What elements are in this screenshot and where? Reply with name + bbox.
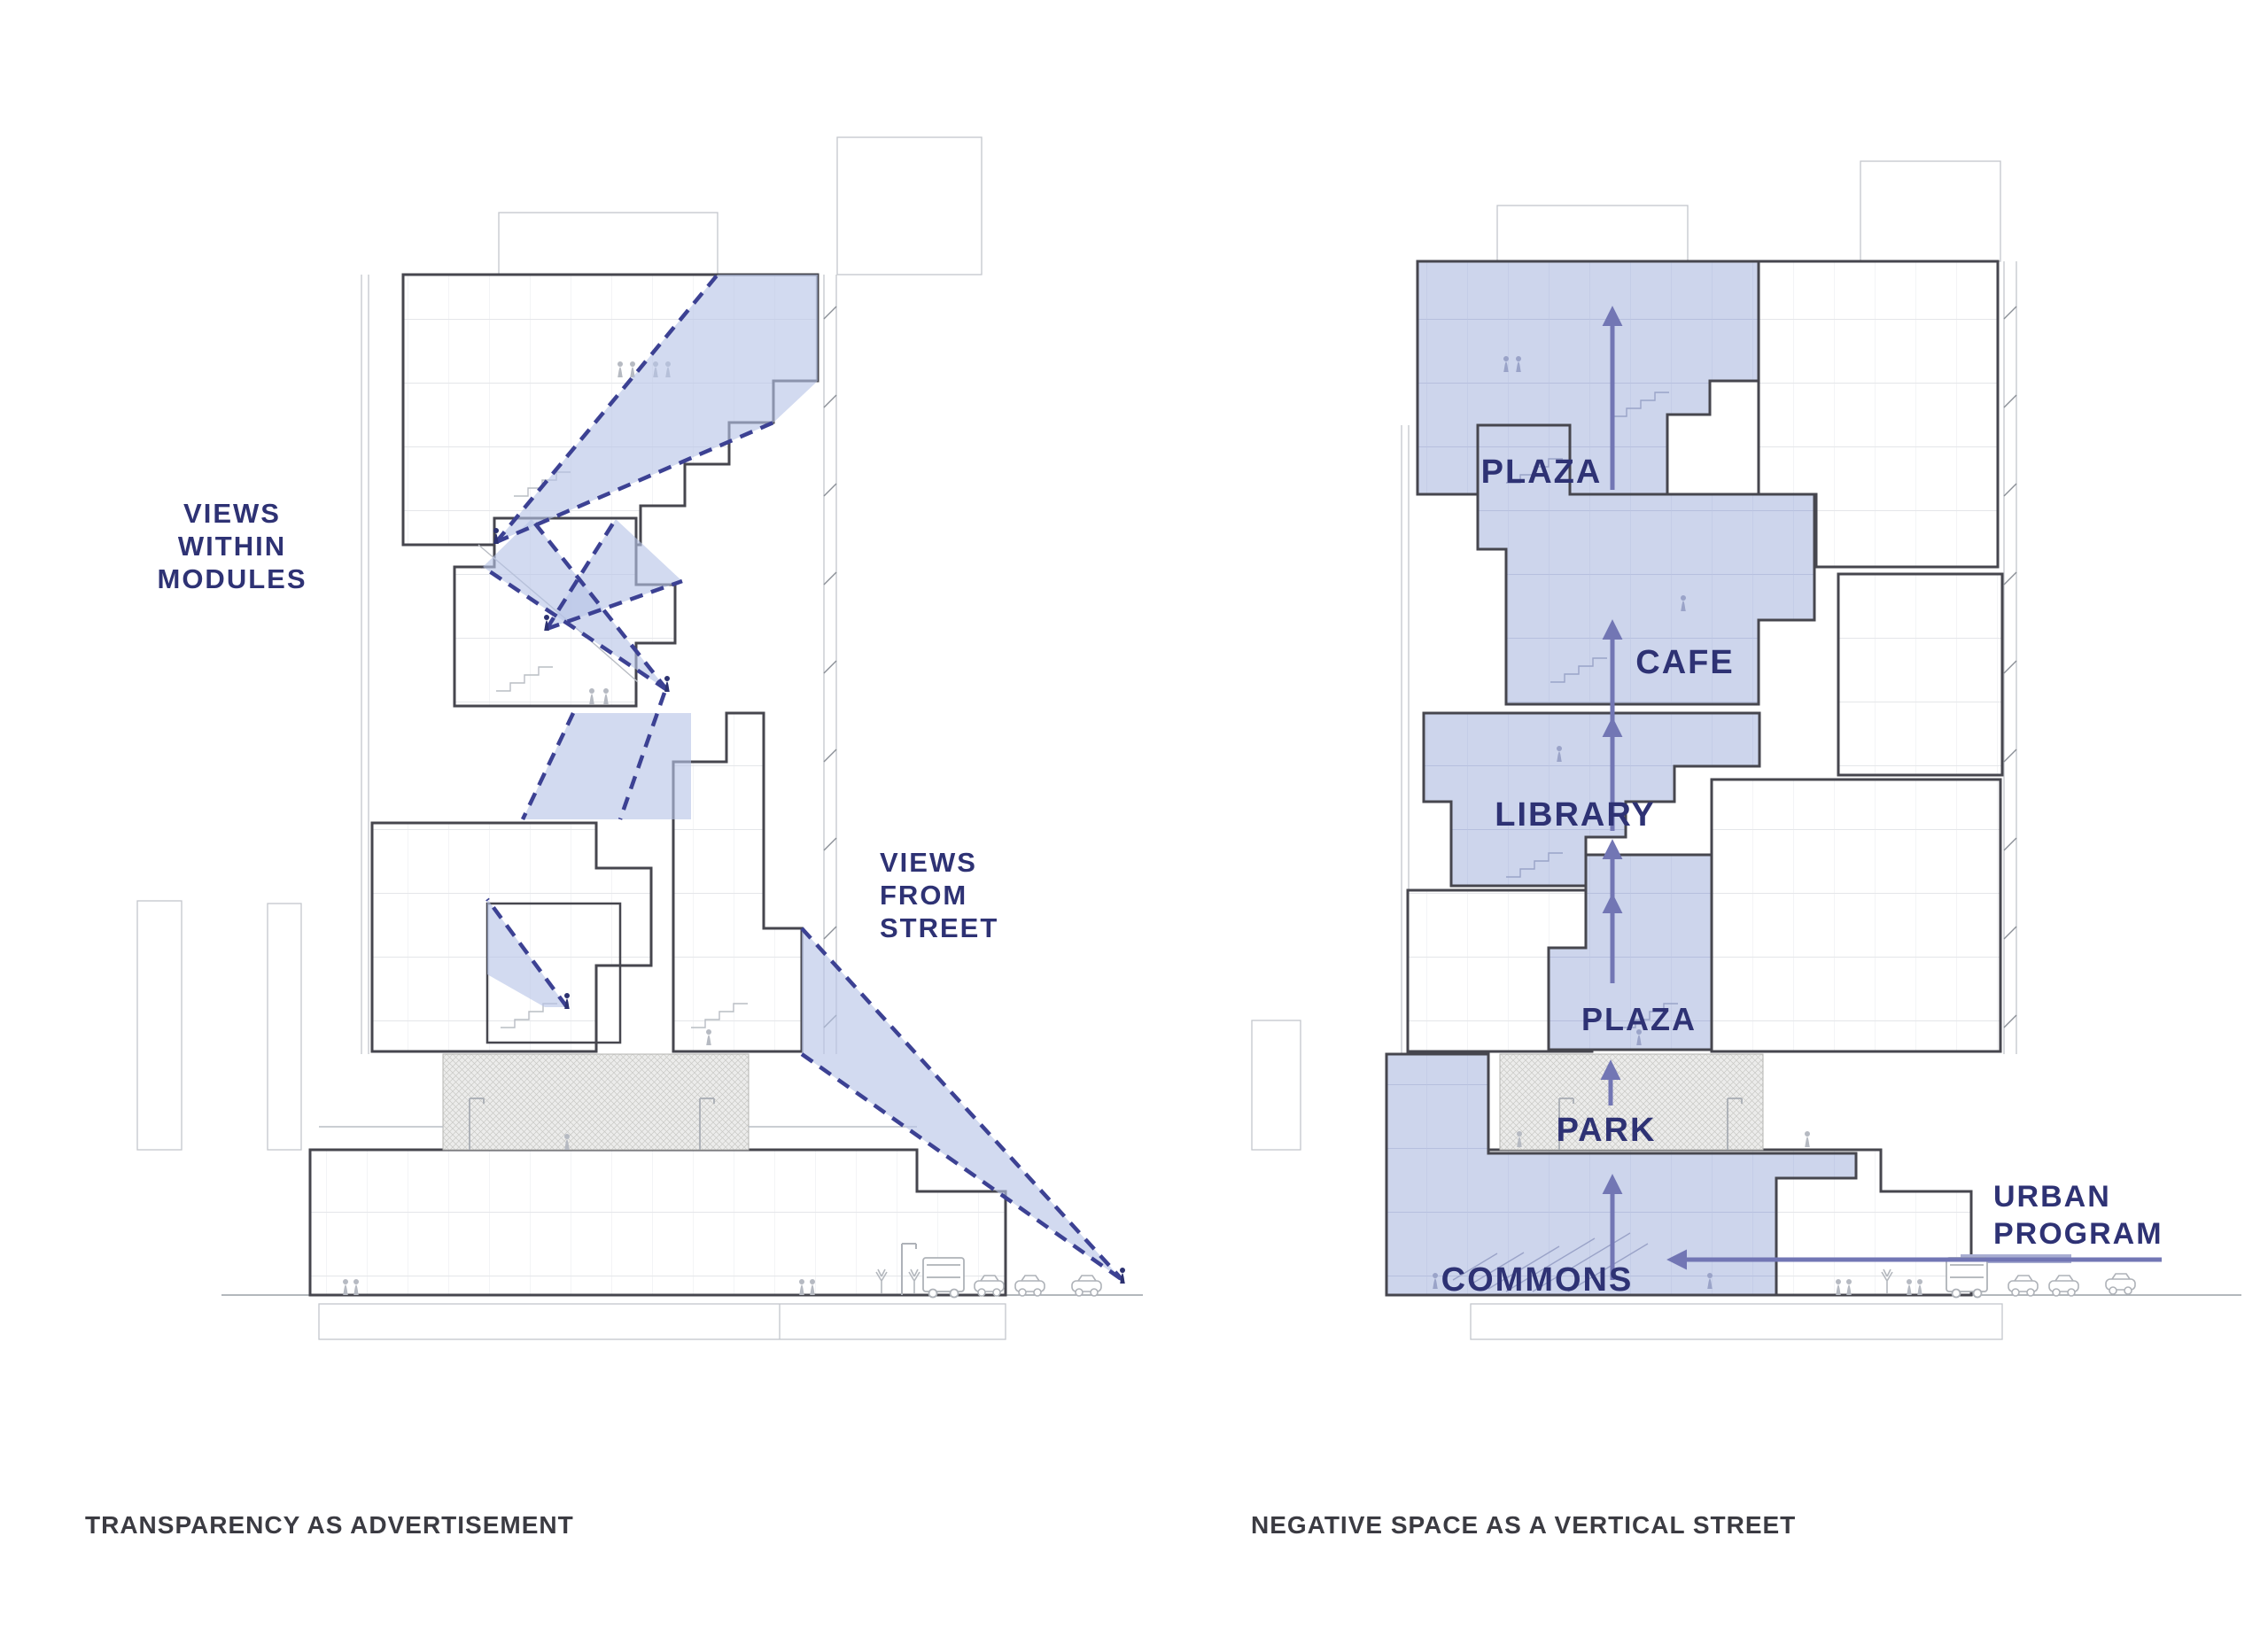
label-views-within-line1: VIEWS — [183, 498, 281, 529]
right-section-diagram: PLAZA CAFE LIBRARY PLAZA PARK COMMONS UR… — [1251, 161, 2241, 1539]
right-caption: NEGATIVE SPACE AS A VERTICAL STREET — [1251, 1511, 1796, 1539]
module-b — [1838, 574, 2002, 775]
label-views-within-line3: MODULES — [158, 563, 307, 594]
right-facade-ticks — [2004, 306, 2016, 1028]
left-caption: TRANSPARENCY AS ADVERTISEMENT — [85, 1511, 574, 1539]
view-cone-void — [523, 713, 691, 819]
park-terrace-left — [443, 1054, 749, 1150]
left-facade-ticks — [824, 306, 836, 1028]
label-views-from-line3: STREET — [880, 912, 998, 943]
label-library: LIBRARY — [1495, 796, 1655, 834]
label-commons: COMMONS — [1441, 1261, 1634, 1299]
label-urban-program-line1: URBAN — [1993, 1180, 2111, 1214]
label-cafe: CAFE — [1635, 644, 1734, 681]
label-plaza-mid: PLAZA — [1581, 1001, 1697, 1037]
label-views-from-line1: VIEWS — [880, 847, 977, 878]
label-views-from-line2: FROM — [880, 880, 967, 911]
label-urban-program-line2: PROGRAM — [1993, 1217, 2163, 1251]
module-lower-right — [673, 713, 802, 1051]
diagram-canvas: VIEWS WITHIN MODULES VIEWS FROM STREET T… — [0, 0, 2268, 1629]
label-park: PARK — [1557, 1112, 1657, 1149]
label-plaza-top: PLAZA — [1481, 454, 1603, 491]
left-section-diagram: VIEWS WITHIN MODULES VIEWS FROM STREET T… — [85, 137, 1143, 1539]
architecture-diagram: VIEWS WITHIN MODULES VIEWS FROM STREET T… — [0, 0, 2268, 1629]
label-views-within-line2: WITHIN — [178, 531, 286, 562]
module-d — [1712, 780, 2000, 1051]
